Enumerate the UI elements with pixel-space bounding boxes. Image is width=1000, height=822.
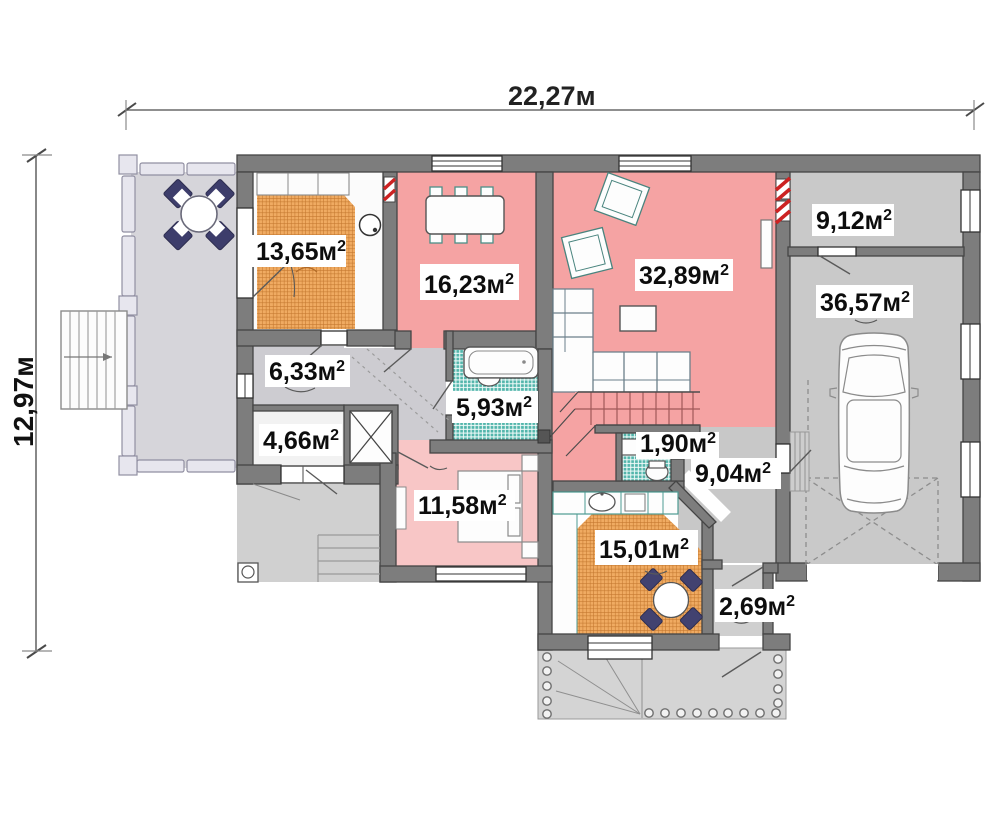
svg-text:11,58м2: 11,58м2 [418,492,507,520]
svg-text:13,65м2: 13,65м2 [256,238,346,266]
svg-text:16,23м2: 16,23м2 [424,271,514,299]
svg-text:5,93м2: 5,93м2 [456,394,532,422]
svg-text:9,04м2: 9,04м2 [695,460,771,488]
svg-text:2,69м2: 2,69м2 [719,593,795,621]
svg-text:12,97м: 12,97м [8,356,39,447]
svg-text:6,33м2: 6,33м2 [269,358,345,386]
svg-text:4,66м2: 4,66м2 [263,427,339,455]
svg-text:36,57м2: 36,57м2 [820,289,910,317]
svg-text:32,89м2: 32,89м2 [639,262,729,290]
svg-text:22,27м: 22,27м [508,81,596,111]
svg-text:9,12м2: 9,12м2 [816,207,892,235]
svg-text:15,01м2: 15,01м2 [599,536,689,564]
svg-text:1,90м2: 1,90м2 [640,430,716,458]
